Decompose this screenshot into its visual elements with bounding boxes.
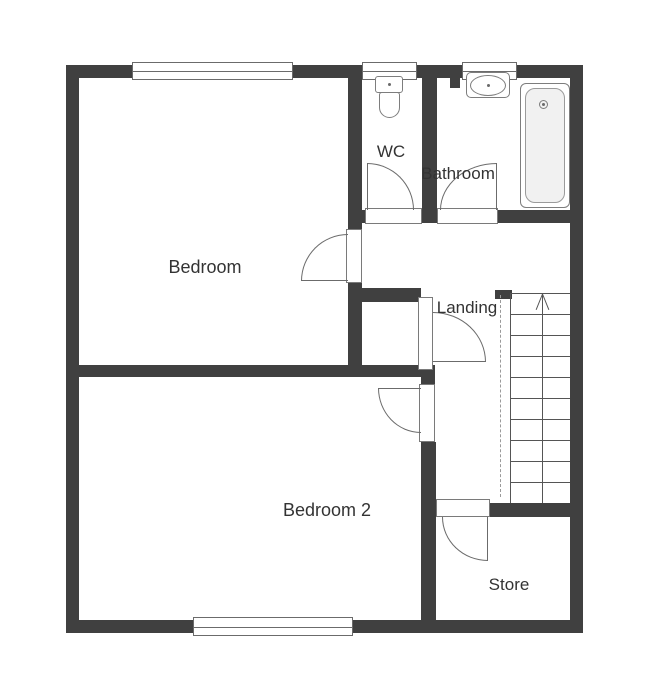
door-arc-store [442, 517, 488, 561]
stairs-dashed-guide [500, 295, 501, 497]
window-pane-line [194, 627, 352, 628]
wall-corridor-south-1 [348, 210, 365, 223]
wall-outer-top-1 [66, 65, 132, 78]
wall-bedroom2-east-lower [421, 442, 436, 620]
window-pane-line [133, 71, 292, 72]
window-bedroom-top [132, 62, 293, 80]
bathtub-faucet-dot [542, 103, 545, 106]
wall-bedroom2-east-top [421, 368, 435, 385]
doorframe-bedroom2 [419, 384, 435, 442]
room-label-bedroom: Bedroom [168, 258, 241, 278]
wall-outer-bottom-2 [353, 620, 583, 633]
wall-outer-right [570, 65, 583, 633]
stairs-up-arrow-shaft [542, 295, 543, 503]
room-label-wc: WC [377, 143, 405, 162]
stairs-treads [510, 293, 570, 503]
wall-bedroom-east-lower [348, 283, 362, 377]
door-arc-bedroom [301, 234, 348, 281]
wall-outer-bottom-1 [66, 620, 193, 633]
wall-store-north [490, 503, 583, 517]
doorframe-wc [365, 208, 422, 224]
wall-outer-top-2 [293, 65, 362, 78]
window-pane-line [363, 71, 416, 72]
room-label-landing: Landing [437, 299, 498, 318]
doorframe-store [436, 499, 490, 517]
wall-bedroom-divider [66, 365, 435, 377]
doorframe-landing [418, 297, 433, 370]
doorframe-bathroom [437, 208, 498, 224]
door-arc-bedroom2 [378, 388, 421, 433]
toilet-bowl-icon [379, 92, 400, 118]
doorframe-bedroom [346, 229, 362, 283]
stairs-left-stringer [510, 293, 511, 503]
sink-drain-dot [487, 84, 490, 87]
wall-landing-west [362, 288, 421, 302]
door-arc-wc [367, 163, 414, 210]
wall-bathroom-notch-stub [450, 78, 460, 88]
wall-bedroom-east-upper [348, 78, 362, 230]
room-label-bedroom2: Bedroom 2 [283, 501, 371, 521]
wall-wc-bathroom-divider [422, 75, 437, 223]
window-bedroom2-bottom [193, 617, 353, 636]
room-label-store: Store [489, 576, 530, 595]
wall-outer-left [66, 65, 79, 633]
door-arc-landing [433, 312, 486, 362]
wall-corridor-south-2 [498, 210, 583, 223]
wall-outer-top-4 [517, 65, 583, 78]
floorplan: Bedroom WC Bathroom Landing Bedroom 2 St… [0, 0, 650, 699]
toilet-tank-dot [388, 83, 391, 86]
room-label-bathroom: Bathroom [421, 165, 495, 184]
